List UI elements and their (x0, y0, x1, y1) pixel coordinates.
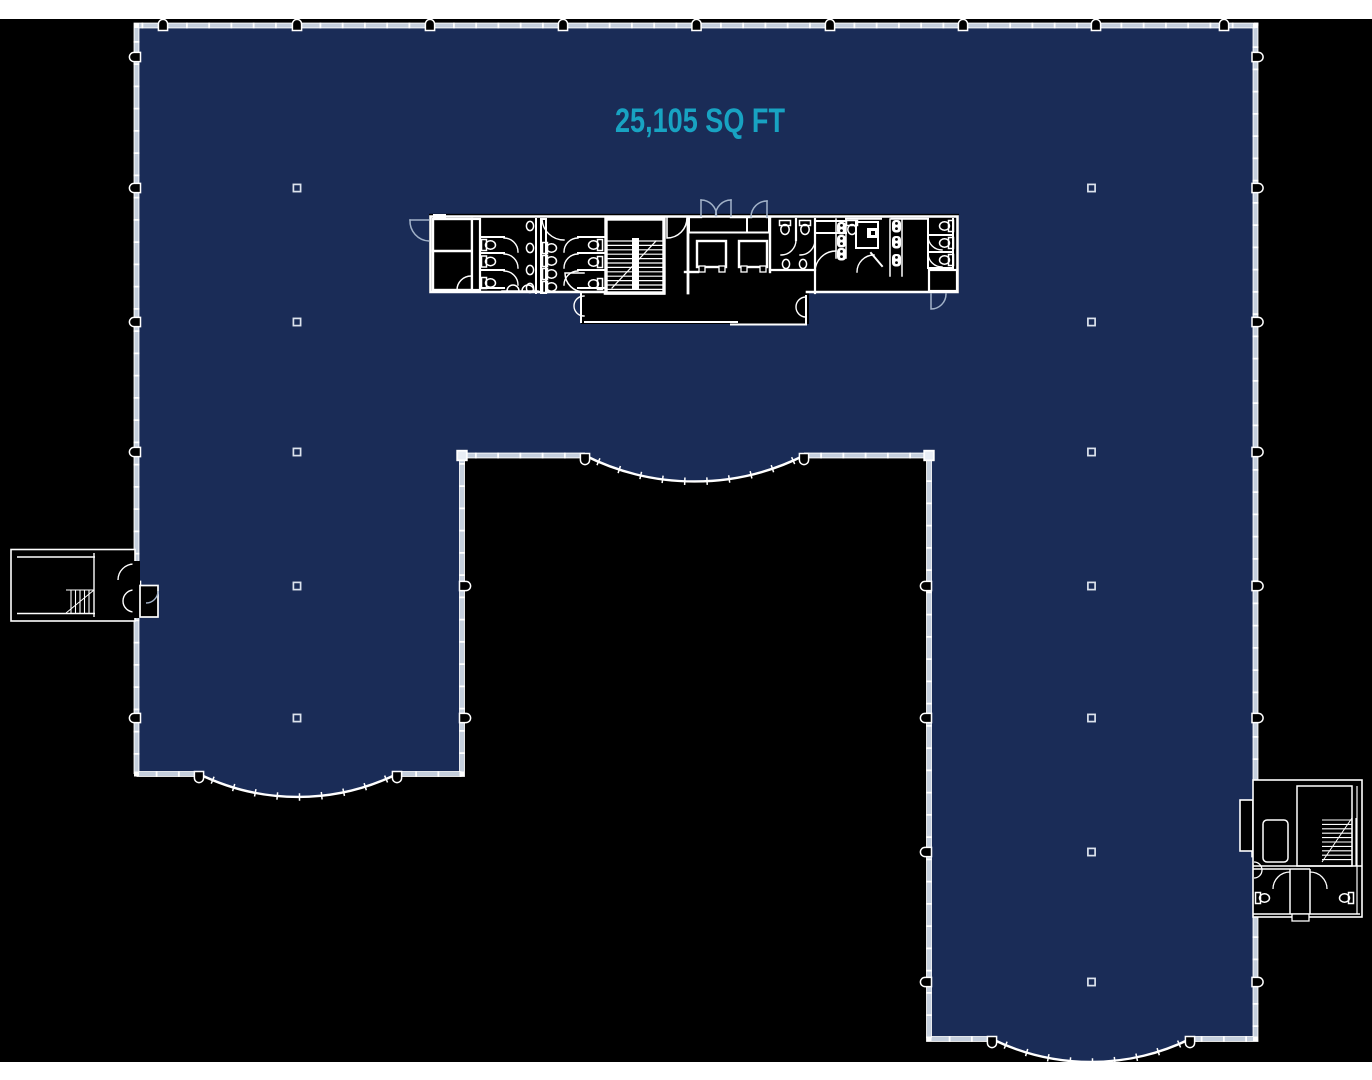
svg-text:25,105 SQ FT: 25,105 SQ FT (615, 102, 785, 140)
